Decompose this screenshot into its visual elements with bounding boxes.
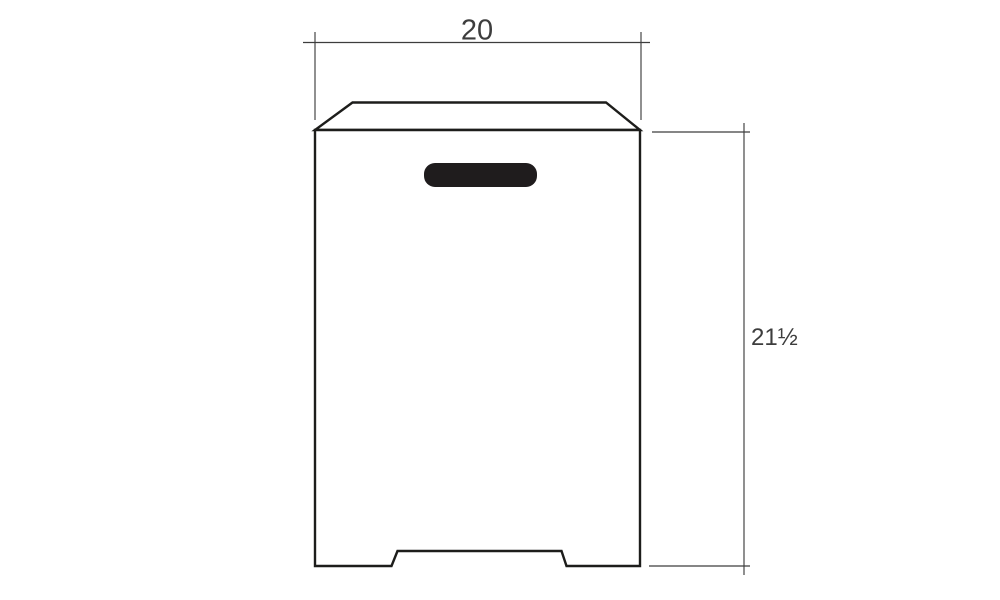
top-panel-outline [315,103,640,131]
height-dimension: 21½ [649,123,798,575]
front-panel-outline [315,130,640,566]
technical-drawing-canvas: 20 21½ [0,0,1000,600]
handle-cutout [424,163,537,187]
product-outline [315,103,640,567]
width-dimension-label: 20 [461,15,493,47]
height-dimension-label: 21½ [751,324,798,351]
technical-drawing-page: 20 21½ [0,0,1000,600]
